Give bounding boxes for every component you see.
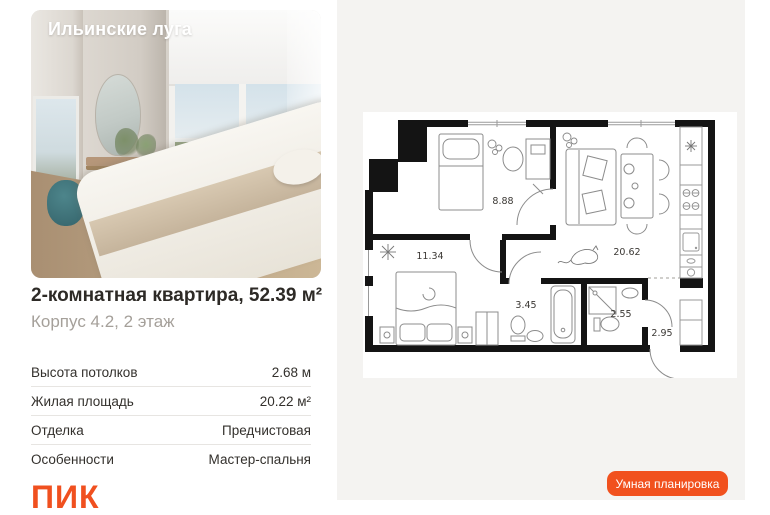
spec-value: Предчистовая — [222, 423, 311, 438]
spec-value: 20.22 м² — [260, 394, 311, 409]
room-area-label: 2.95 — [651, 328, 672, 339]
spec-value: Мастер-спальня — [209, 452, 311, 467]
apartment-photo[interactable]: Ильинские луга — [31, 10, 321, 278]
smart-layout-button[interactable]: Умная планировка — [607, 471, 728, 496]
snowflake-icon — [380, 244, 396, 260]
pik-logo: ПИК — [31, 481, 100, 513]
project-name-overlay: Ильинские луга — [48, 19, 192, 40]
listing-card-page: { "photo": { "overlay_title": "Ильинские… — [0, 0, 770, 500]
spec-label: Отделка — [31, 423, 84, 438]
cat-sketch — [558, 246, 598, 264]
spec-row-features: Особенности Мастер-спальня — [31, 445, 311, 473]
room-area-label: 11.34 — [416, 251, 443, 262]
spec-row-living-area: Жилая площадь 20.22 м² — [31, 387, 311, 416]
specs-table: Высота потолков 2.68 м Жилая площадь 20.… — [31, 358, 311, 473]
furniture-master — [380, 272, 498, 345]
spec-label: Особенности — [31, 452, 114, 467]
photo-plant — [115, 128, 139, 158]
room-area-label: 8.88 — [492, 196, 513, 207]
spec-row-finishing: Отделка Предчистовая — [31, 416, 311, 445]
room-area-label: 2.55 — [610, 309, 631, 320]
spec-label: Высота потолков — [31, 365, 138, 380]
listing-title: 2-комнатная квартира, 52.39 м² — [31, 285, 322, 307]
furniture-bathroom — [511, 286, 575, 343]
spec-value: 2.68 м — [272, 365, 311, 380]
hallway-wardrobe — [680, 300, 702, 345]
room-area-label: 20.62 — [613, 247, 640, 258]
furniture-living — [566, 138, 669, 234]
spec-label: Жилая площадь — [31, 394, 134, 409]
room-area-label: 3.45 — [515, 300, 536, 311]
listing-subtitle: Корпус 4.2, 2 этаж — [31, 312, 175, 332]
floorplan-image: 8.88 20.62 11.34 3.45 2.55 2.95 — [363, 112, 737, 378]
spec-row-ceiling-height: Высота потолков 2.68 м — [31, 358, 311, 387]
floorplan-svg: 8.88 20.62 11.34 3.45 2.55 2.95 — [363, 112, 737, 378]
